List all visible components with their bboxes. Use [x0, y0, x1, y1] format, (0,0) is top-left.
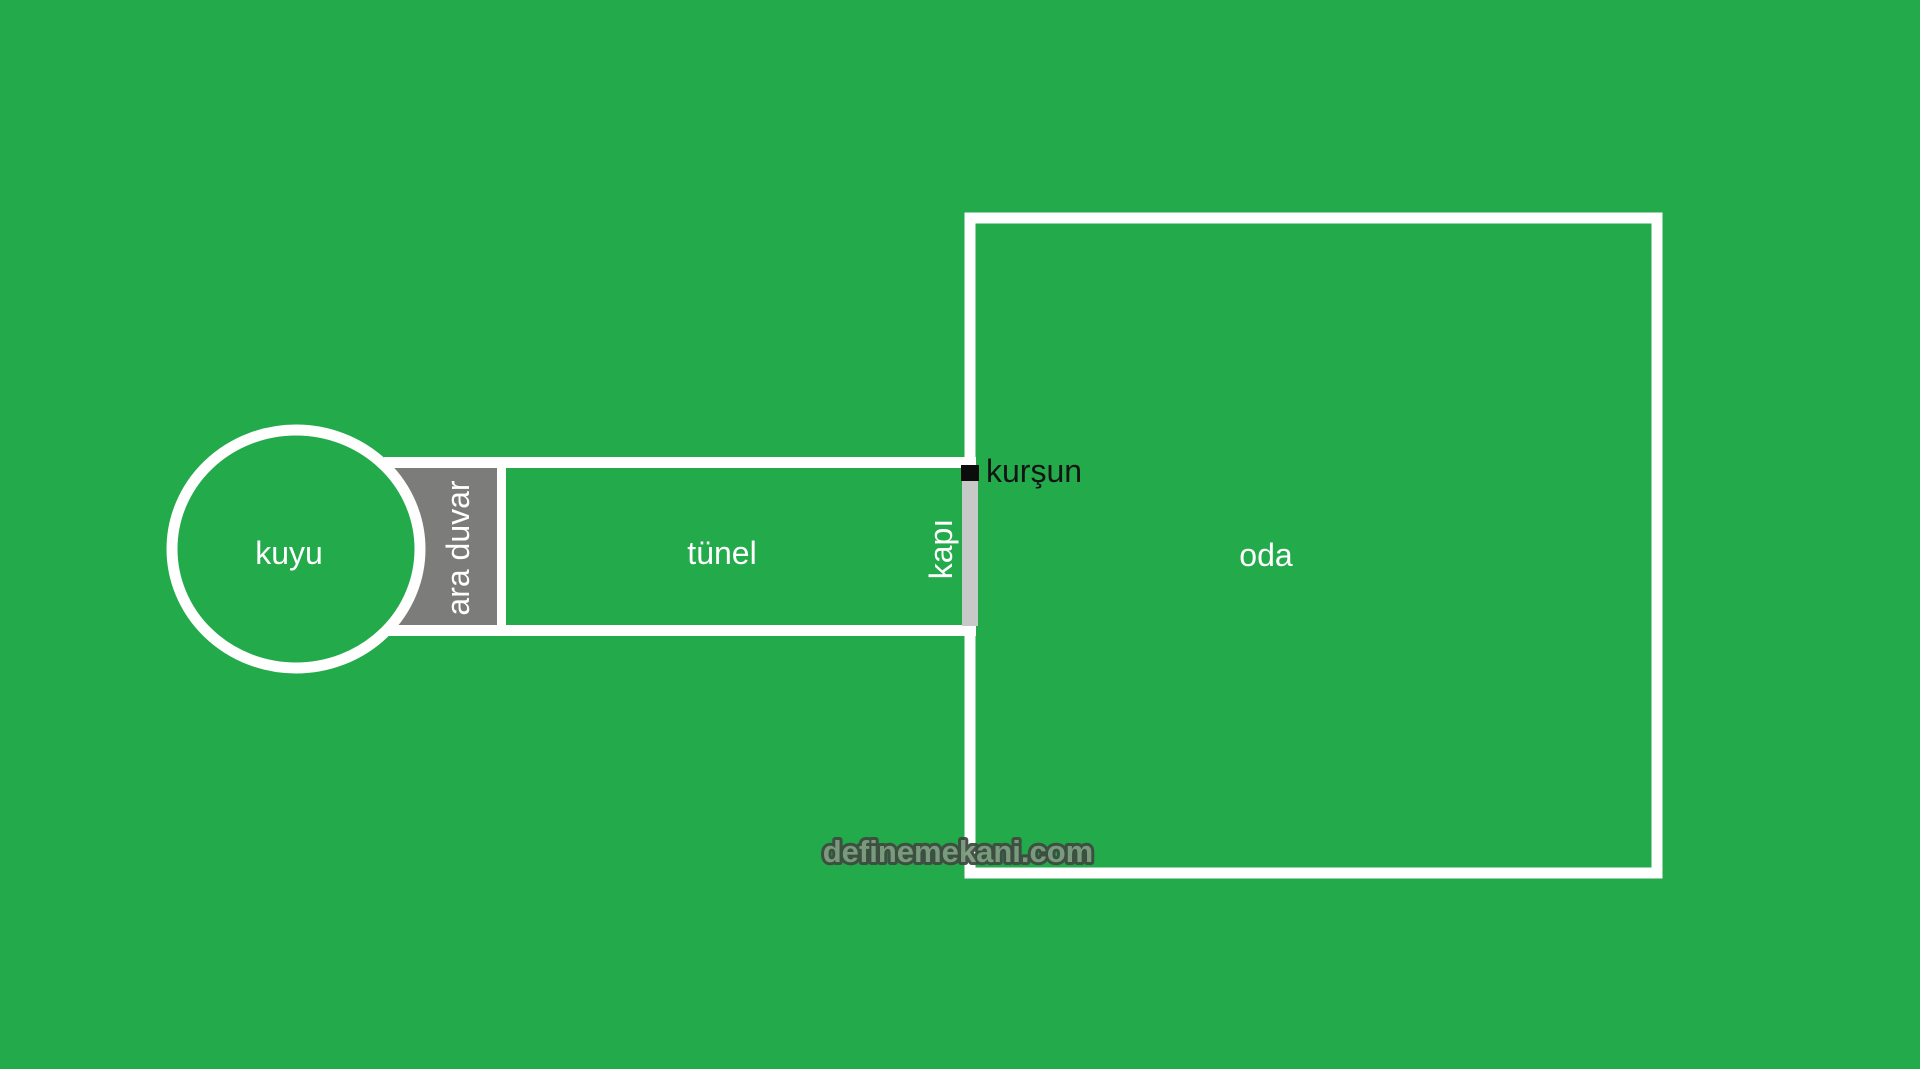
- treasure-map-diagram: kuyu ara duvar tünel kapı kurşun oda def…: [0, 0, 1920, 1069]
- door-label: kapı: [923, 519, 959, 579]
- door-bar: [962, 479, 978, 626]
- watermark: definemekani.com: [823, 834, 1093, 869]
- partition-wall-label: ara duvar: [440, 480, 476, 616]
- partition-tunnel-divider: [497, 457, 506, 636]
- lead-label: kurşun: [986, 453, 1082, 489]
- tunnel-bottom-wall: [388, 625, 976, 636]
- diagram-canvas: kuyu ara duvar tünel kapı kurşun oda def…: [0, 0, 1920, 1069]
- room-label: oda: [1239, 537, 1293, 573]
- well-label: kuyu: [255, 535, 323, 571]
- tunnel-label: tünel: [687, 535, 756, 571]
- lead-marker: [961, 465, 979, 481]
- tunnel-top-wall: [384, 457, 976, 468]
